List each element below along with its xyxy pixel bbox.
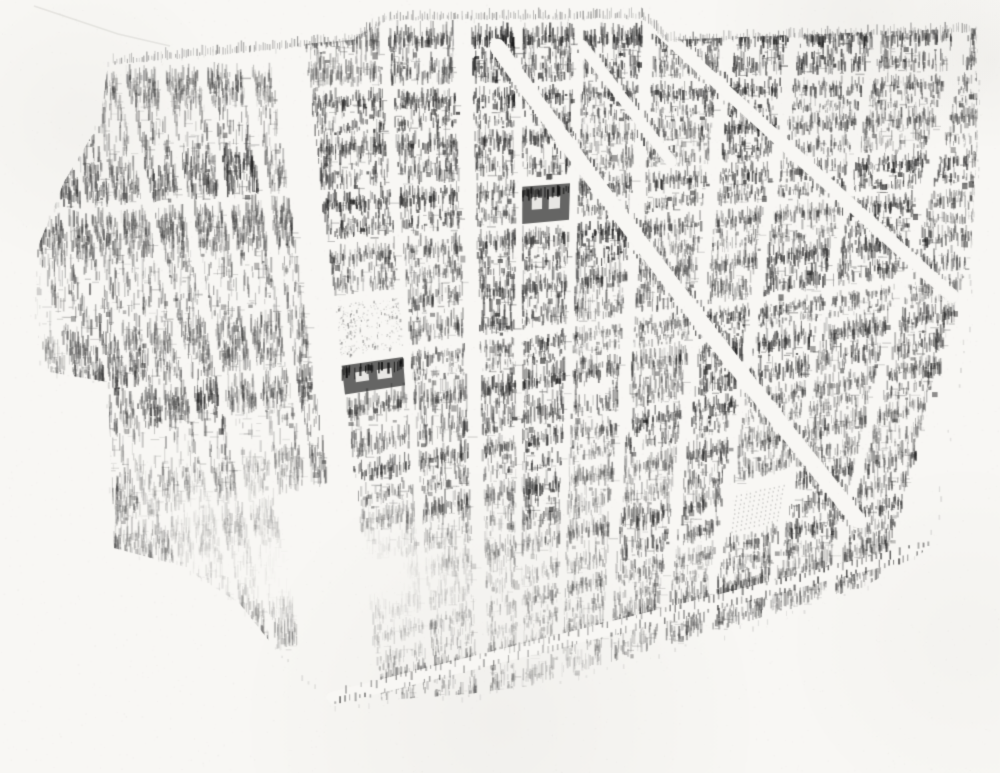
city-sketch-canvas bbox=[0, 0, 1000, 773]
pencil-city-map-figure: Hand-drawn pencil sketch: bird's-eye vie… bbox=[0, 0, 1000, 773]
scanned-sketch-page: Hand-drawn pencil sketch: bird's-eye vie… bbox=[0, 0, 1000, 773]
